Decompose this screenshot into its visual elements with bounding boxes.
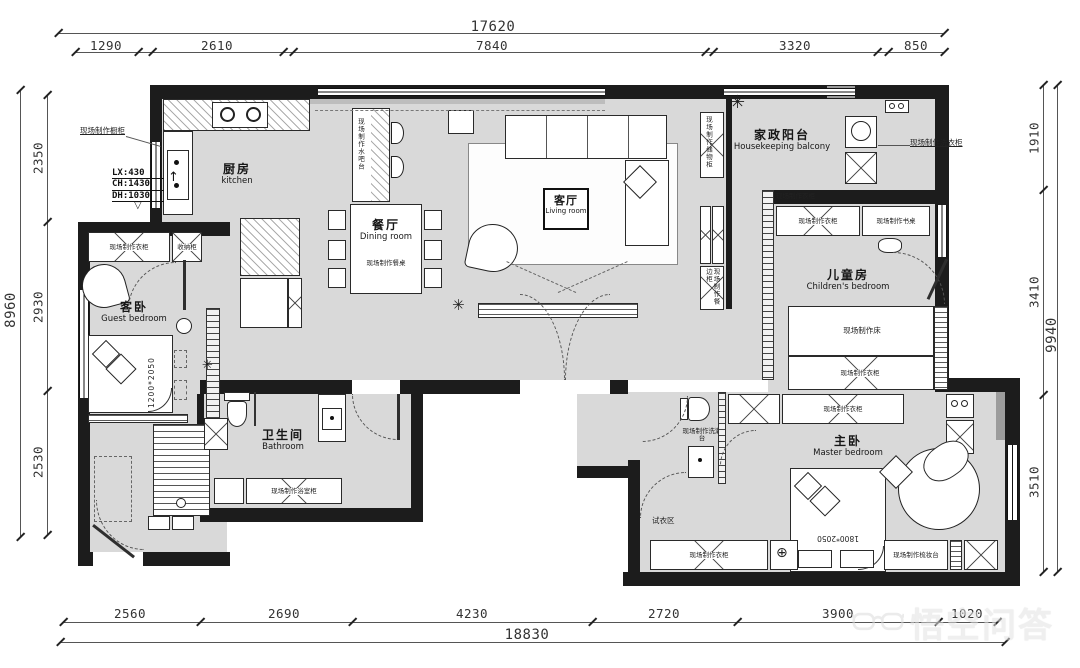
tall-cabinet [700,206,711,264]
faucet-icon [961,400,968,407]
dim-left-total: 8960 [3,292,19,328]
burner-icon [246,107,261,122]
toilet-bowl [227,401,247,427]
master-right-cabinet [964,540,998,570]
living-window [318,88,605,96]
master-bottom-wardrobe-label: 现场制作衣柜 [668,552,750,559]
island-marble [371,109,389,201]
fitting-area-label: 试衣区 [652,516,675,525]
dim-left-seg: 2530 [31,446,46,478]
dining-chair [328,268,346,288]
plant-icon: ✳ [452,296,465,314]
room-label-children: 儿童房Children's bedroom [807,268,890,292]
toilet-tank [224,392,250,401]
dining-chair [424,210,442,230]
sink-drain-icon [174,160,179,165]
entry-door-opening [93,552,143,566]
floor-plan-canvas: 厨房kitchen 现场制作水吧台 餐厅Dining room 现场制作餐桌 客… [0,0,1080,668]
dim-top-seg: 1290 [90,38,122,53]
children-underbed-label: 现场制作衣柜 [800,370,920,377]
wall-divider-strip [726,99,732,309]
dim-top-seg: 3320 [779,38,811,53]
guest-nightstand [174,380,187,400]
dim-top-seg: 7840 [476,38,508,53]
washer-drum-icon [851,121,871,141]
master-bath-partition [718,392,726,484]
wall-bath-bottom [200,508,423,522]
room-label-master: 主卧Master bedroom [813,434,883,458]
guest-wardrobe-label: 现场制作衣柜 [92,244,166,251]
children-desk-label: 现场制作书桌 [866,218,926,225]
master-corner-sink [946,394,974,418]
master-bed-size: 1800*2050 [802,534,874,543]
target-icon: ⊕ [776,545,788,561]
window-sill [300,99,605,104]
dim-top-total: 17620 [471,19,516,35]
entry-cabinet [204,418,228,450]
faucet-icon [898,103,904,109]
storage-cabinet-label: 现场制作储物柜 [704,116,711,174]
dim-bottom-seg: 2690 [268,606,300,621]
laundry-leader-label: 现场制作洗衣柜 [910,138,963,147]
dim-left-seg: 2930 [31,291,46,323]
watermark-brand: 悟空问答 [910,598,1054,647]
laundry-leader-line [878,145,910,146]
level-mark-icon: ▽ [134,200,142,211]
faucet-dot-icon [330,416,334,420]
hall-double-door-opening [520,380,610,394]
drain-icon [176,498,186,508]
glasses-icon [852,607,904,639]
bath-door-leaf [397,394,400,440]
dim-line-left-seg [47,95,48,535]
dining-table-label: 现场制作餐桌 [356,260,416,267]
desk-chair [878,238,902,253]
master-closet [728,394,780,424]
room-label-living: 客厅 Living room [545,194,586,215]
dining-chair [328,240,346,260]
master-closet-label: 现场制作衣柜 [800,406,886,413]
master-vanity [688,446,714,478]
plant-icon: ✳ [202,358,213,373]
room-label-kitchen: 厨房kitchen [221,162,252,186]
watermark: 悟空问答 [852,598,1054,647]
bed-foot-bench [840,550,874,568]
guest-nightstand [174,350,187,368]
plant-icon: ✳ [730,92,745,113]
wall-children-left [762,190,774,380]
dim-line-left-total [20,90,21,537]
dim-bottom-seg: 4230 [456,606,488,621]
guest-storage-label: 收纳柜 [174,244,200,251]
guest-low-cabinet [88,414,188,423]
faucet-icon [951,400,958,407]
cabinet-leader-label: 现场制作橱柜 [80,126,125,135]
side-cabinet-box [448,110,474,134]
kitchen-side-strip [288,278,302,328]
bath-cabinet-label: 现场制作浴室柜 [256,488,332,495]
children-wardrobe-leader: 现场制作衣柜 [776,193,815,200]
dim-top-seg: 2610 [201,38,233,53]
tv-console [478,303,638,318]
dining-chair [328,210,346,230]
burner-icon [220,107,235,122]
faucet-icon [889,103,895,109]
children-bed-label: 现场制作床 [812,326,912,335]
dim-bottom-seg: 2720 [648,606,680,621]
master-hatch-strip [950,540,962,570]
dim-bottom-seg: 2560 [114,606,146,621]
tall-cabinet [712,206,724,264]
kitchen-tall-cabinet [240,218,300,276]
sofa [505,115,667,159]
bath-door-opening [352,380,400,394]
wall-hall-stub [577,466,628,478]
window-note: LX:430 CH:1430 DH:1030 [112,168,164,202]
dim-right-total: 9940 [1044,317,1060,353]
bed-foot-bench [798,550,832,568]
dim-right-seg: 3410 [1027,276,1042,308]
dim-bottom-total: 18830 [505,627,550,643]
children-wardrobe-label: 现场制作衣柜 [781,218,855,225]
dim-bottom-seg: 3900 [822,606,854,621]
dining-chair [424,268,442,288]
bath-cabinet-white [214,478,244,504]
shower-bar [254,392,256,426]
guest-stool [176,318,192,334]
room-label-dining: 餐厅Dining room [360,218,412,242]
sideboard-label: 现场制作餐边柜 [704,268,719,308]
laundry-sink-cabinet [845,152,877,184]
dim-top-seg: 850 [904,38,928,53]
dresser-label: 现场制作梳妆台 [888,552,944,559]
guest-door-leaf [183,260,186,310]
master-window [1007,445,1018,520]
shoe-bench [172,516,194,530]
wall-master-left [628,460,640,572]
master-toilet-bowl [688,397,710,421]
water-bar-label: 现场制作水吧台 [356,118,363,194]
dining-chair [424,240,442,260]
children-window [937,205,947,257]
wall-master-bottom [623,572,1020,586]
wall-bath-right [411,394,423,508]
curtain-track [315,110,605,111]
dim-left-seg: 2350 [31,142,46,174]
dim-right-seg: 1910 [1027,122,1042,154]
faucet-dot-icon [698,458,702,462]
room-label-balcony: 家政阳台Housekeeping balcony [734,128,830,152]
room-label-bath: 卫生间Bathroom [262,428,304,452]
children-shelf [934,306,948,390]
dim-right-seg: 3510 [1027,466,1042,498]
arrow-up-icon: ↑ [168,170,179,185]
kitchen-appliance-cabinet [240,278,288,328]
shoe-bench [148,516,170,530]
